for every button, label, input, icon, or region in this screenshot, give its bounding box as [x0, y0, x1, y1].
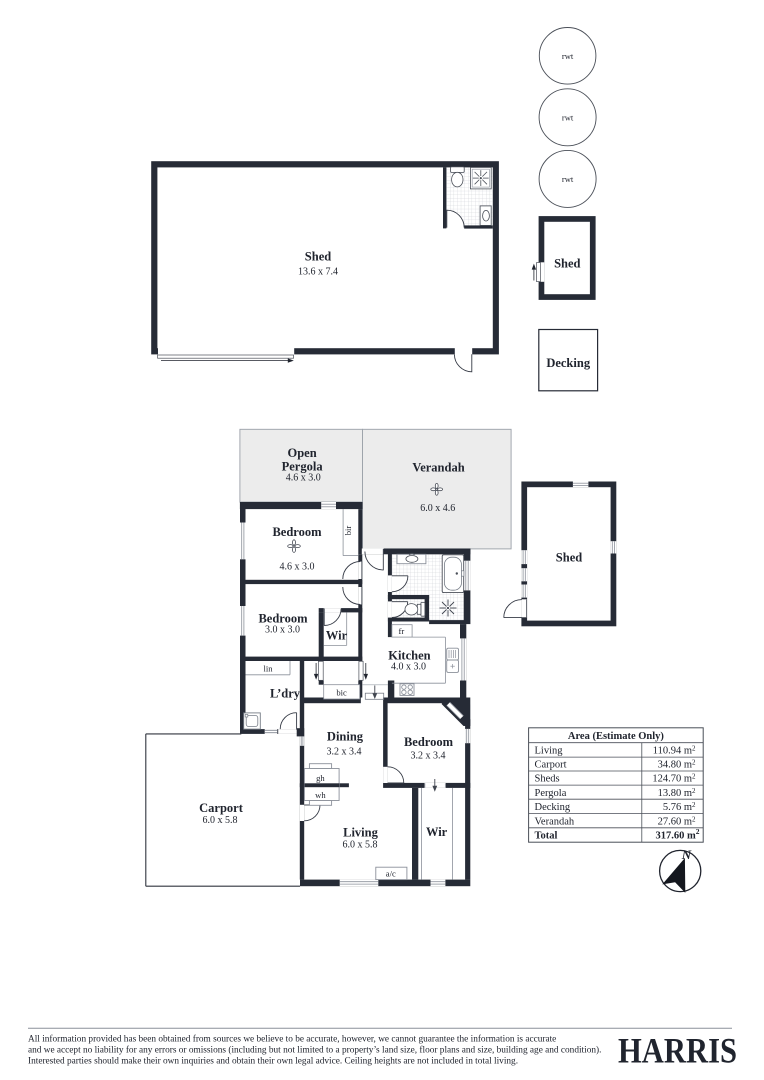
svg-text:Wir: Wir — [426, 825, 448, 839]
svg-text:4.6 x 3.0: 4.6 x 3.0 — [280, 562, 315, 573]
svg-text:4.0 x 3.0: 4.0 x 3.0 — [391, 662, 426, 673]
svg-text:Living: Living — [535, 746, 564, 757]
svg-text:rwt: rwt — [562, 51, 574, 61]
svg-text:Dining: Dining — [327, 730, 364, 744]
svg-text:Sheds: Sheds — [535, 774, 560, 785]
svg-text:Shed: Shed — [554, 256, 580, 270]
svg-text:34.80 m2: 34.80 m2 — [658, 759, 696, 771]
svg-text:L’dry: L’dry — [270, 687, 301, 701]
svg-text:Wir: Wir — [326, 628, 348, 642]
svg-text:13.80 m2: 13.80 m2 — [658, 787, 696, 799]
svg-text:Total: Total — [535, 831, 558, 842]
svg-text:rwt: rwt — [562, 174, 574, 184]
svg-text:HARRIS: HARRIS — [618, 1031, 737, 1071]
svg-text:N: N — [681, 847, 692, 862]
svg-text:a/c: a/c — [386, 869, 396, 879]
svg-text:Decking: Decking — [546, 356, 591, 370]
svg-text:fr: fr — [399, 626, 405, 636]
svg-text:gh: gh — [316, 773, 325, 783]
svg-text:Open: Open — [288, 446, 317, 460]
svg-text:6.0 x 5.8: 6.0 x 5.8 — [343, 840, 378, 851]
svg-text:wh: wh — [315, 790, 326, 800]
svg-text:Bedroom: Bedroom — [272, 525, 322, 539]
svg-text:Decking: Decking — [535, 802, 571, 813]
svg-text:3.2 x 3.4: 3.2 x 3.4 — [411, 751, 446, 762]
svg-text:4.6 x 3.0: 4.6 x 3.0 — [286, 472, 321, 483]
svg-text:3.0 x 3.0: 3.0 x 3.0 — [265, 625, 300, 636]
svg-text:6.0 x 5.8: 6.0 x 5.8 — [203, 815, 238, 826]
svg-text:124.70 m2: 124.70 m2 — [652, 773, 696, 785]
svg-text:5.76 m2: 5.76 m2 — [663, 801, 696, 813]
svg-text:6.0 x 4.6: 6.0 x 4.6 — [420, 503, 455, 514]
svg-text:Bedroom: Bedroom — [258, 611, 308, 625]
svg-text:Interested parties should make: Interested parties should make their own… — [28, 1057, 518, 1067]
svg-text:Verandah: Verandah — [535, 816, 575, 827]
svg-text:Shed: Shed — [556, 551, 582, 565]
svg-text:Living: Living — [343, 826, 378, 840]
svg-text:Pergola: Pergola — [535, 788, 567, 799]
svg-text:bir: bir — [343, 526, 353, 536]
svg-text:All information provided has b: All information provided has been obtain… — [28, 1034, 556, 1045]
svg-text:Area (Estimate Only): Area (Estimate Only) — [568, 731, 665, 742]
svg-text:rwt: rwt — [562, 113, 574, 123]
svg-text:Carport: Carport — [535, 760, 567, 771]
svg-text:Carport: Carport — [199, 801, 244, 815]
svg-text:3.2 x 3.4: 3.2 x 3.4 — [327, 747, 362, 758]
svg-text:13.6 x 7.4: 13.6 x 7.4 — [298, 267, 338, 278]
svg-text:lin: lin — [263, 664, 273, 674]
svg-text:110.94 m2: 110.94 m2 — [653, 745, 696, 757]
svg-text:Verandah: Verandah — [412, 461, 464, 475]
svg-text:Kitchen: Kitchen — [388, 649, 430, 663]
svg-text:Bedroom: Bedroom — [404, 735, 454, 749]
svg-text:bic: bic — [336, 687, 347, 697]
svg-text:Shed: Shed — [305, 250, 331, 264]
svg-text:and we accept no liability for: and we accept no liability for any error… — [28, 1045, 601, 1056]
svg-text:27.60 m2: 27.60 m2 — [658, 815, 696, 827]
